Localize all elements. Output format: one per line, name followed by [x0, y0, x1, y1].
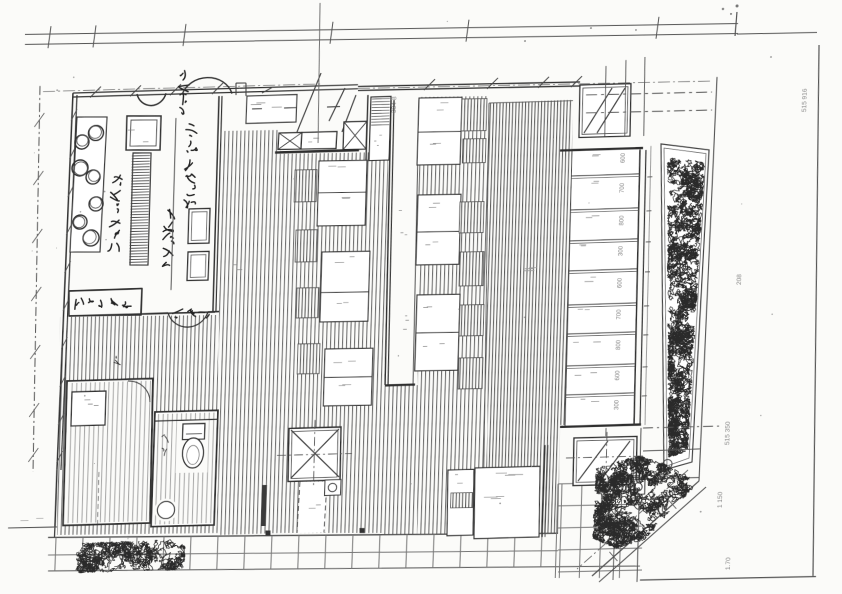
svg-text:300: 300 — [614, 399, 620, 410]
svg-text:300: 300 — [618, 245, 624, 256]
svg-text:800: 800 — [616, 339, 622, 350]
svg-text:600: 600 — [615, 370, 621, 381]
svg-text:304-8: 304-8 — [391, 96, 399, 113]
svg-text:515 916: 515 916 — [801, 88, 809, 112]
svg-text:1.70: 1.70 — [725, 557, 732, 570]
svg-text:208: 208 — [736, 274, 743, 285]
svg-text:1 150: 1 150 — [717, 491, 724, 508]
svg-text:600: 600 — [618, 277, 624, 288]
svg-text:800: 800 — [619, 215, 625, 226]
svg-text:515 350: 515 350 — [724, 421, 732, 445]
svg-text:700: 700 — [617, 309, 623, 320]
svg-text:600: 600 — [621, 152, 627, 163]
svg-text:700: 700 — [620, 182, 626, 193]
